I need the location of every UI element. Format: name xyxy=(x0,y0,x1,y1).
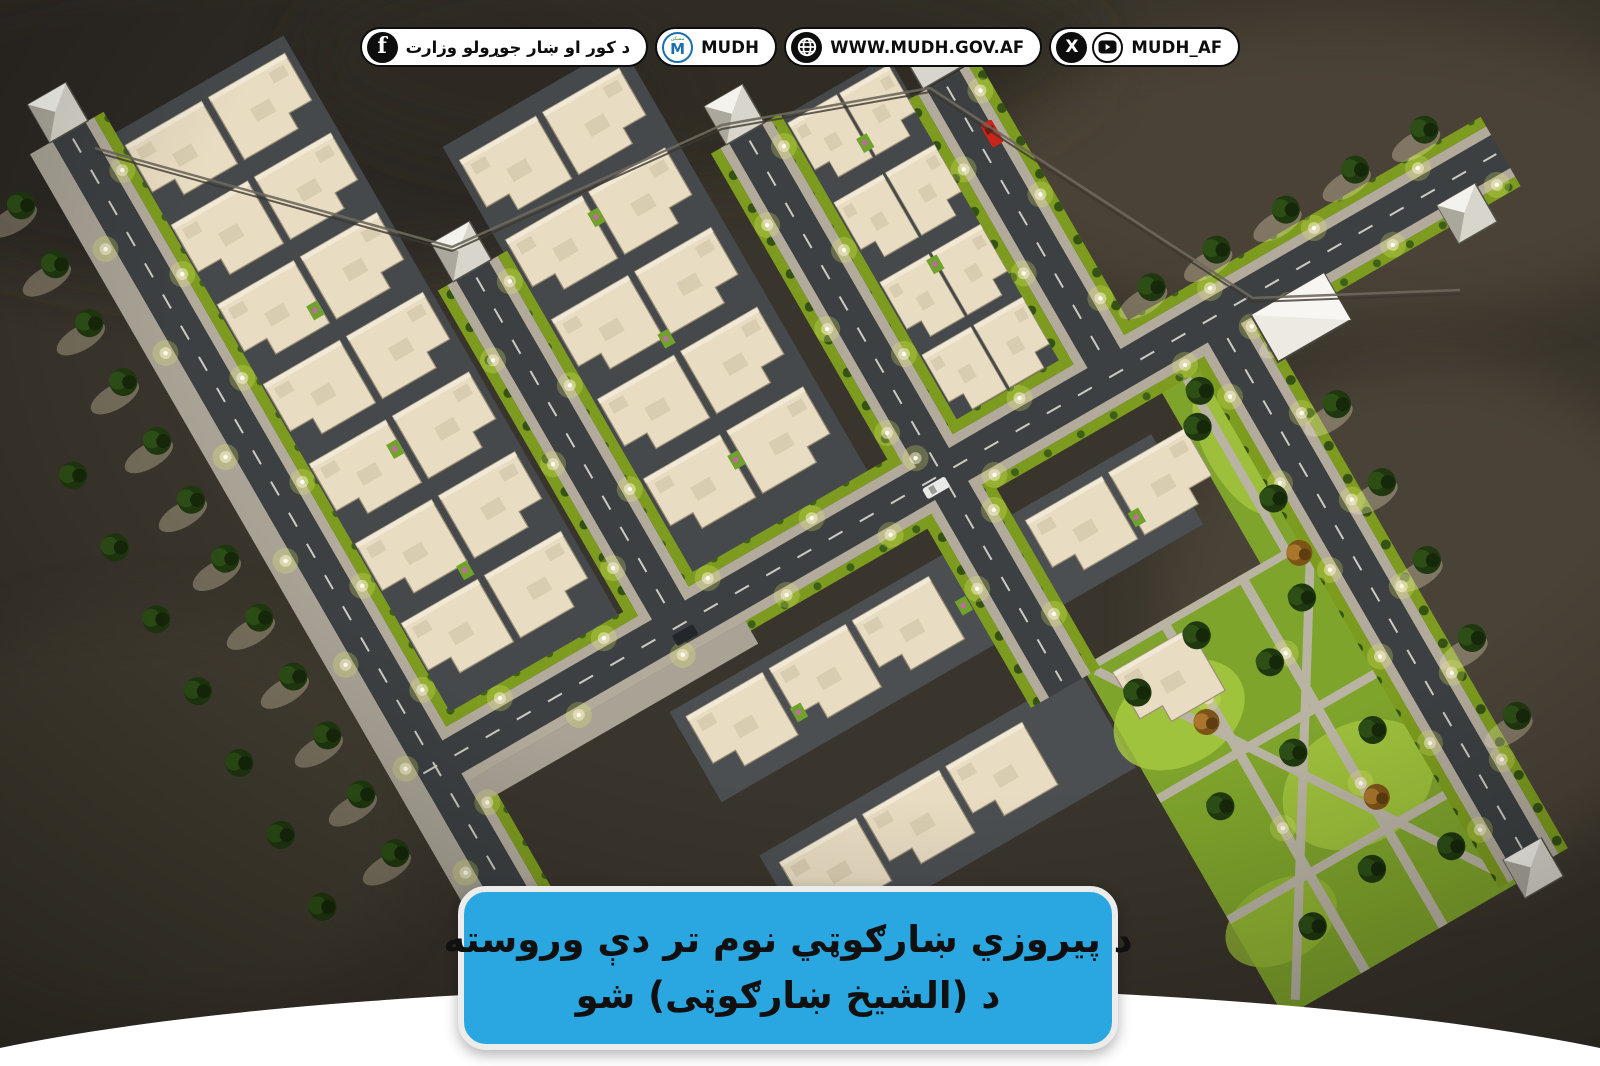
facebook-badge[interactable]: f د کور او ښار جوړولو وزارت xyxy=(360,27,648,67)
caption-line-1: د پیروزي ښارګوټي نوم تر دې وروسته xyxy=(443,912,1132,968)
youtube-icon xyxy=(1092,32,1123,63)
social-badge-row: f د کور او ښار جوړولو وزارت مسکن M MUDH … xyxy=(0,26,1600,68)
social-handles-badge[interactable]: X MUDH_AF xyxy=(1049,27,1240,67)
facebook-icon: f xyxy=(367,32,398,63)
mudh-logo-badge[interactable]: مسکن M MUDH xyxy=(655,27,777,67)
caption-line-2: د (الشیخ ښارګوټی) شو xyxy=(576,968,1001,1024)
website-label: WWW.MUDH.GOV.AF xyxy=(830,38,1024,57)
x-icon: X xyxy=(1056,32,1087,63)
social-handle-label: MUDH_AF xyxy=(1131,38,1222,57)
globe-icon xyxy=(791,32,822,63)
facebook-label: د کور او ښار جوړولو وزارت xyxy=(406,38,630,57)
mudh-label: MUDH xyxy=(701,38,759,57)
website-badge[interactable]: WWW.MUDH.GOV.AF xyxy=(784,27,1042,67)
mudh-logo-icon: مسکن M xyxy=(662,32,693,63)
caption-banner: د پیروزي ښارګوټي نوم تر دې وروسته د (الش… xyxy=(458,886,1118,1050)
poster: f د کور او ښار جوړولو وزارت مسکن M MUDH … xyxy=(0,0,1600,1066)
